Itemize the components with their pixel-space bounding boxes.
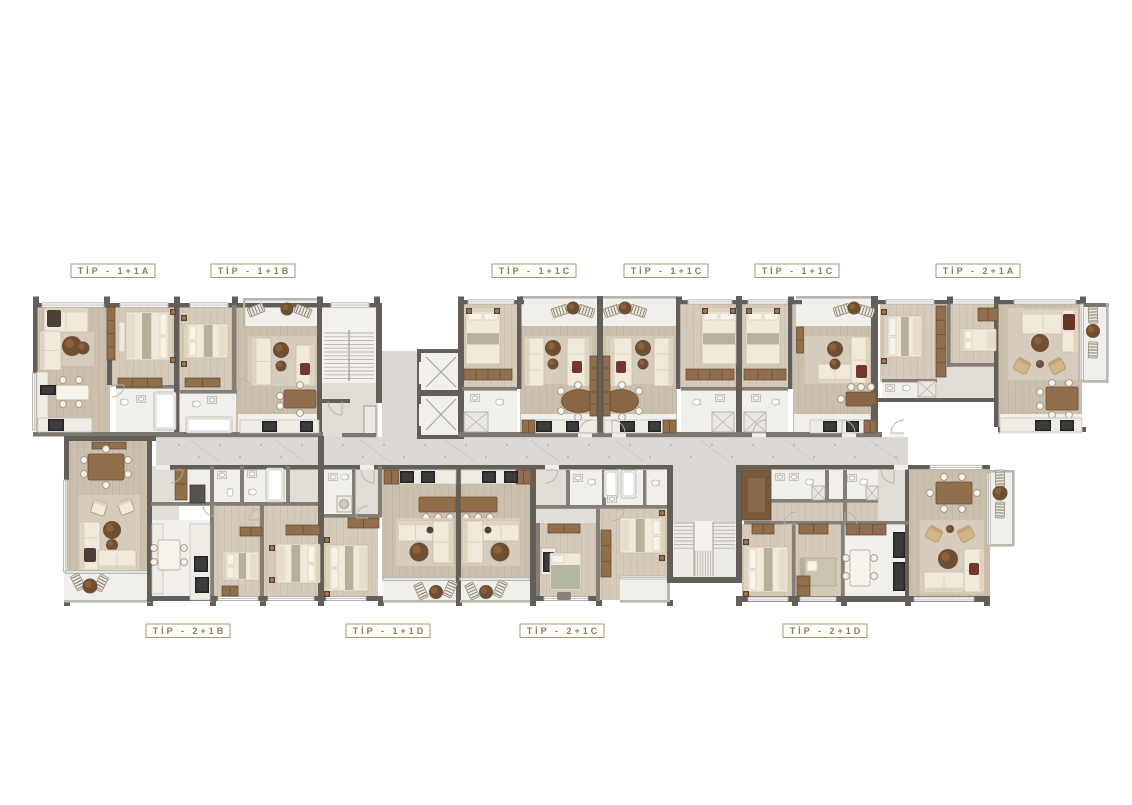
svg-text:TİP - 2+1C: TİP - 2+1C	[527, 626, 601, 636]
svg-text:TİP - 1+1C: TİP - 1+1C	[762, 266, 836, 276]
svg-text:TİP - 2+1D: TİP - 2+1D	[790, 626, 864, 636]
svg-text:TİP - 1+1A: TİP - 1+1A	[78, 266, 152, 276]
svg-text:TİP - 1+1C: TİP - 1+1C	[499, 266, 573, 276]
svg-text:TİP - 1+1C: TİP - 1+1C	[631, 266, 705, 276]
svg-text:TİP - 1+1B: TİP - 1+1B	[218, 266, 292, 276]
svg-text:TİP - 2+1A: TİP - 2+1A	[943, 266, 1017, 276]
svg-text:TİP - 1+1D: TİP - 1+1D	[353, 626, 427, 636]
svg-text:TİP - 2+1B: TİP - 2+1B	[153, 626, 227, 636]
